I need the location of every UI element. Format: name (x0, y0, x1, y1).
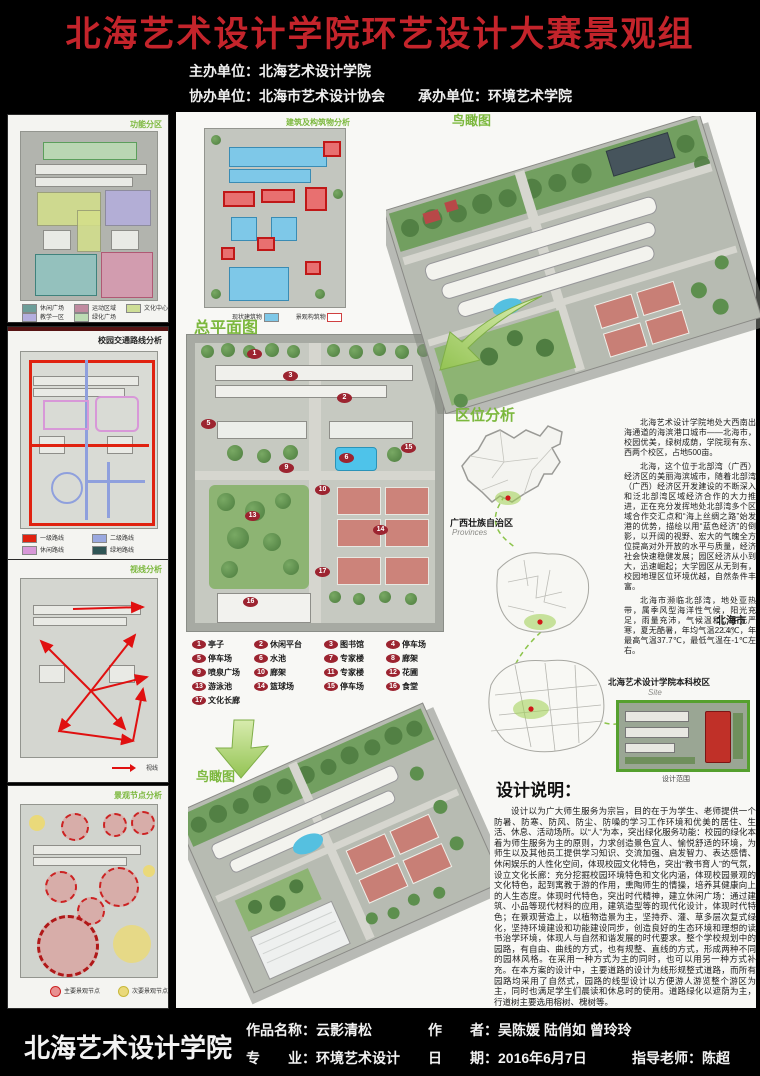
province-sub-label: Provinces (452, 528, 487, 537)
footer-major: 专 业：环境艺术设计 (246, 1048, 400, 1068)
footer-band: 北海艺术设计学院 作品名称：云影清松 专 业：环境艺术设计 作 者：吴陈媛 陆俏… (0, 1010, 760, 1076)
top-aerial-label: 鸟瞰图 (452, 110, 491, 129)
sightline-arrows (21, 579, 157, 757)
zoning-title: 功能分区 (130, 119, 162, 130)
location-paragraph-2: 北海，这个位于北部湾（广西）经济区的美丽海滨城市，随着北部湾（广西）经济区开发建… (624, 462, 756, 592)
zoning-swatch-3 (126, 304, 141, 313)
zoning-swatch-5 (74, 313, 89, 322)
location-paragraph-3: 北海市濒临北部湾，地处亚热带，属季风型海洋性气候，阳光充足，雨量充沛，气候温和，… (624, 596, 756, 656)
footer-date: 日 期：2016年6月7日 (428, 1048, 587, 1068)
bottom-aerial-label: 鸟瞰图 (196, 766, 235, 785)
co-organizer-line: 协办单位：北海市艺术设计协会 (189, 86, 385, 106)
sightline-title: 视线分析 (130, 564, 162, 575)
plan-marker: 6 (339, 453, 354, 463)
footer-author: 作 者：吴陈媛 陆俏如 曾玲玲 (428, 1020, 632, 1040)
plan-marker: 2 (337, 393, 352, 403)
description-body: 设计以为广大师生服务为宗旨，目的在于为学生、老师提供一个防暑、防寒、防风、防尘、… (494, 806, 756, 1007)
location-paragraphs: 北海艺术设计学院地处大西南出海通道的海滨港口城市——北海市，校园优美，绿树成荫，… (624, 418, 756, 660)
panel-function-zoning: 功能分区 休闲广场 运动区域 文化中心 教学一区 绿化广场 (8, 115, 168, 322)
traffic-swatch-4 (92, 546, 107, 555)
site-sub-label: Site (648, 688, 662, 697)
competition-poster: 北海艺术设计学院环艺设计大赛景观组 主办单位：北海艺术设计学院 协办单位：北海市… (0, 0, 760, 1076)
traffic-title: 校园交通路线分析 (98, 335, 162, 346)
poster-title: 北海艺术设计学院环艺设计大赛景观组 (0, 6, 760, 57)
footer-advisor: 指导老师：陈超 (632, 1048, 730, 1068)
building-analysis-map: 建筑及构筑物分析 现状建筑物 景观构筑物 (198, 116, 350, 328)
undertaker-line: 承办单位：环境艺术学院 (418, 86, 572, 106)
location-paragraph-1: 北海艺术设计学院地处大西南出海通道的海滨港口城市——北海市，校园优美，绿树成荫，… (624, 418, 756, 458)
panel-node-analysis: 景观节点分析 主要景观节点 次要景观节点 (8, 786, 168, 1008)
building-map-plan (204, 128, 346, 308)
plan-marker: 1 (247, 349, 262, 359)
nodes-legend: 主要景观节点 次要景观节点 (50, 986, 168, 997)
zoning-legend-row2: 教学一区 绿化广场 (22, 312, 116, 322)
plan-marker: 10 (315, 485, 330, 495)
node-main-icon (50, 986, 61, 997)
plan-marker: 17 (315, 567, 330, 577)
zoning-plan (20, 131, 158, 301)
traffic-swatch-1 (22, 534, 37, 543)
landscape-structure-swatch (327, 313, 342, 322)
nodes-plan (20, 804, 158, 978)
link-arrow-icon (426, 294, 546, 374)
node-secondary-icon (118, 986, 129, 997)
traffic-swatch-2 (92, 534, 107, 543)
panel-sightline-analysis: 视线分析 (8, 560, 168, 782)
province-sketch-map (478, 540, 600, 642)
footer-school: 北海艺术设计学院 (24, 1028, 232, 1065)
traffic-legend-row1: 一级路线 二级路线 (22, 533, 134, 543)
plan-marker: 16 (243, 597, 258, 607)
header-band: 北海艺术设计学院环艺设计大赛景观组 主办单位：北海艺术设计学院 协办单位：北海市… (0, 0, 760, 112)
plan-marker: 14 (373, 525, 388, 535)
sightline-plan (20, 578, 158, 758)
plan-marker: 15 (401, 443, 416, 453)
panel-traffic-analysis: 校园交通路线分析 一级路线 二级路线 休闲路线 绿地路线 (8, 327, 168, 560)
site-map-caption: 设计范围 (662, 774, 690, 784)
plan-marker: 9 (279, 463, 294, 473)
sightline-legend-arrow-icon (112, 764, 136, 772)
plan-marker: 13 (245, 511, 260, 521)
footer-work: 作品名称：云影清松 (246, 1020, 372, 1040)
traffic-plan (20, 351, 158, 529)
zoning-swatch-4 (22, 313, 37, 322)
sightline-legend: 视线 (112, 763, 158, 772)
traffic-swatch-3 (22, 546, 37, 555)
nodes-title: 景观节点分析 (114, 790, 162, 801)
site-label: 北海艺术设计学院本科校区 (608, 676, 710, 688)
plan-legend: 1亭子 2休闲平台 3图书馆 4停车场 5停车场 6水池 7专家楼 8廊架 9喷… (192, 637, 462, 707)
building-map-title: 建筑及构筑物分析 (286, 117, 350, 128)
china-map (448, 422, 568, 516)
plan-marker: 3 (283, 371, 298, 381)
site-map (616, 700, 750, 772)
host-line: 主办单位：北海艺术设计学院 (189, 61, 371, 81)
traffic-legend-row2: 休闲路线 绿地路线 (22, 545, 134, 555)
city-sketch-map (475, 645, 617, 763)
plan-marker: 5 (201, 419, 216, 429)
existing-building-swatch (264, 313, 279, 322)
description-title: 设计说明： (496, 776, 581, 801)
